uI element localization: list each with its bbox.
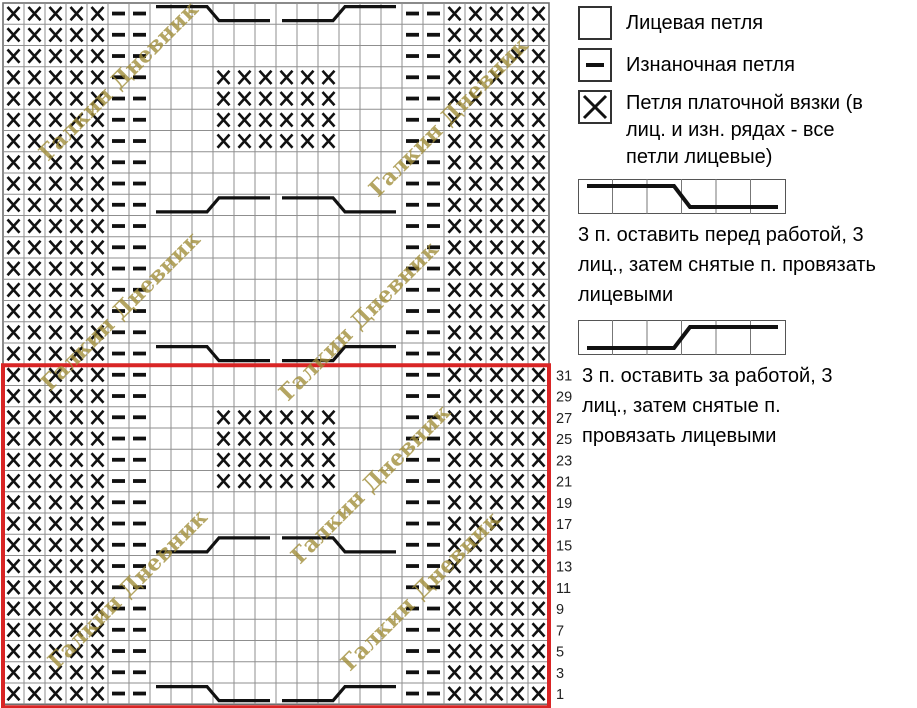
row-number: 19	[556, 496, 572, 512]
legend-item-garter: Петля платочной вязки (в лиц. и изн. ряд…	[578, 90, 914, 171]
row-number: 25	[556, 432, 572, 448]
row-number: 3	[556, 666, 564, 682]
garter-stitch-icon	[578, 90, 612, 124]
row-number: 11	[556, 581, 571, 597]
row-numbers: 312927252321191715131197531	[556, 368, 572, 703]
legend-item-label: Лицевая петля	[626, 10, 763, 36]
legend-item-knit: Лицевая петля	[578, 6, 914, 40]
knitting-pattern-page: 312927252321191715131197531Галкин Дневни…	[0, 0, 917, 708]
x-glyph	[580, 92, 610, 122]
legend-item-label: Изнаночная петля	[626, 52, 795, 78]
purl-stitch-icon	[578, 48, 612, 82]
row-number: 21	[556, 475, 572, 491]
row-number: 31	[556, 368, 572, 384]
row-number: 5	[556, 645, 564, 661]
knitting-chart: 312927252321191715131197531Галкин Дневни…	[0, 0, 576, 708]
knit-stitch-icon	[578, 6, 612, 40]
legend: Лицевая петля Изнаночная петля Петля пла…	[578, 6, 914, 461]
row-number: 27	[556, 411, 572, 427]
row-number: 17	[556, 517, 572, 533]
row-number: 29	[556, 390, 572, 406]
cable-front-description: 3 п. оставить перед работой, 3 лиц., зат…	[578, 220, 880, 310]
legend-item-purl: Изнаночная петля	[578, 48, 914, 82]
legend-item-label: Петля платочной вязки (в лиц. и изн. ряд…	[626, 90, 868, 171]
row-number: 7	[556, 623, 564, 639]
row-number: 23	[556, 453, 572, 469]
cable-back-description: 3 п. оставить за работой, 3 лиц., затем …	[582, 361, 852, 451]
row-number: 1	[556, 687, 564, 703]
cable-front-icon	[578, 179, 786, 214]
row-number: 9	[556, 602, 564, 618]
row-number: 15	[556, 538, 572, 554]
cable-back-icon	[578, 320, 786, 355]
row-number: 13	[556, 560, 572, 576]
